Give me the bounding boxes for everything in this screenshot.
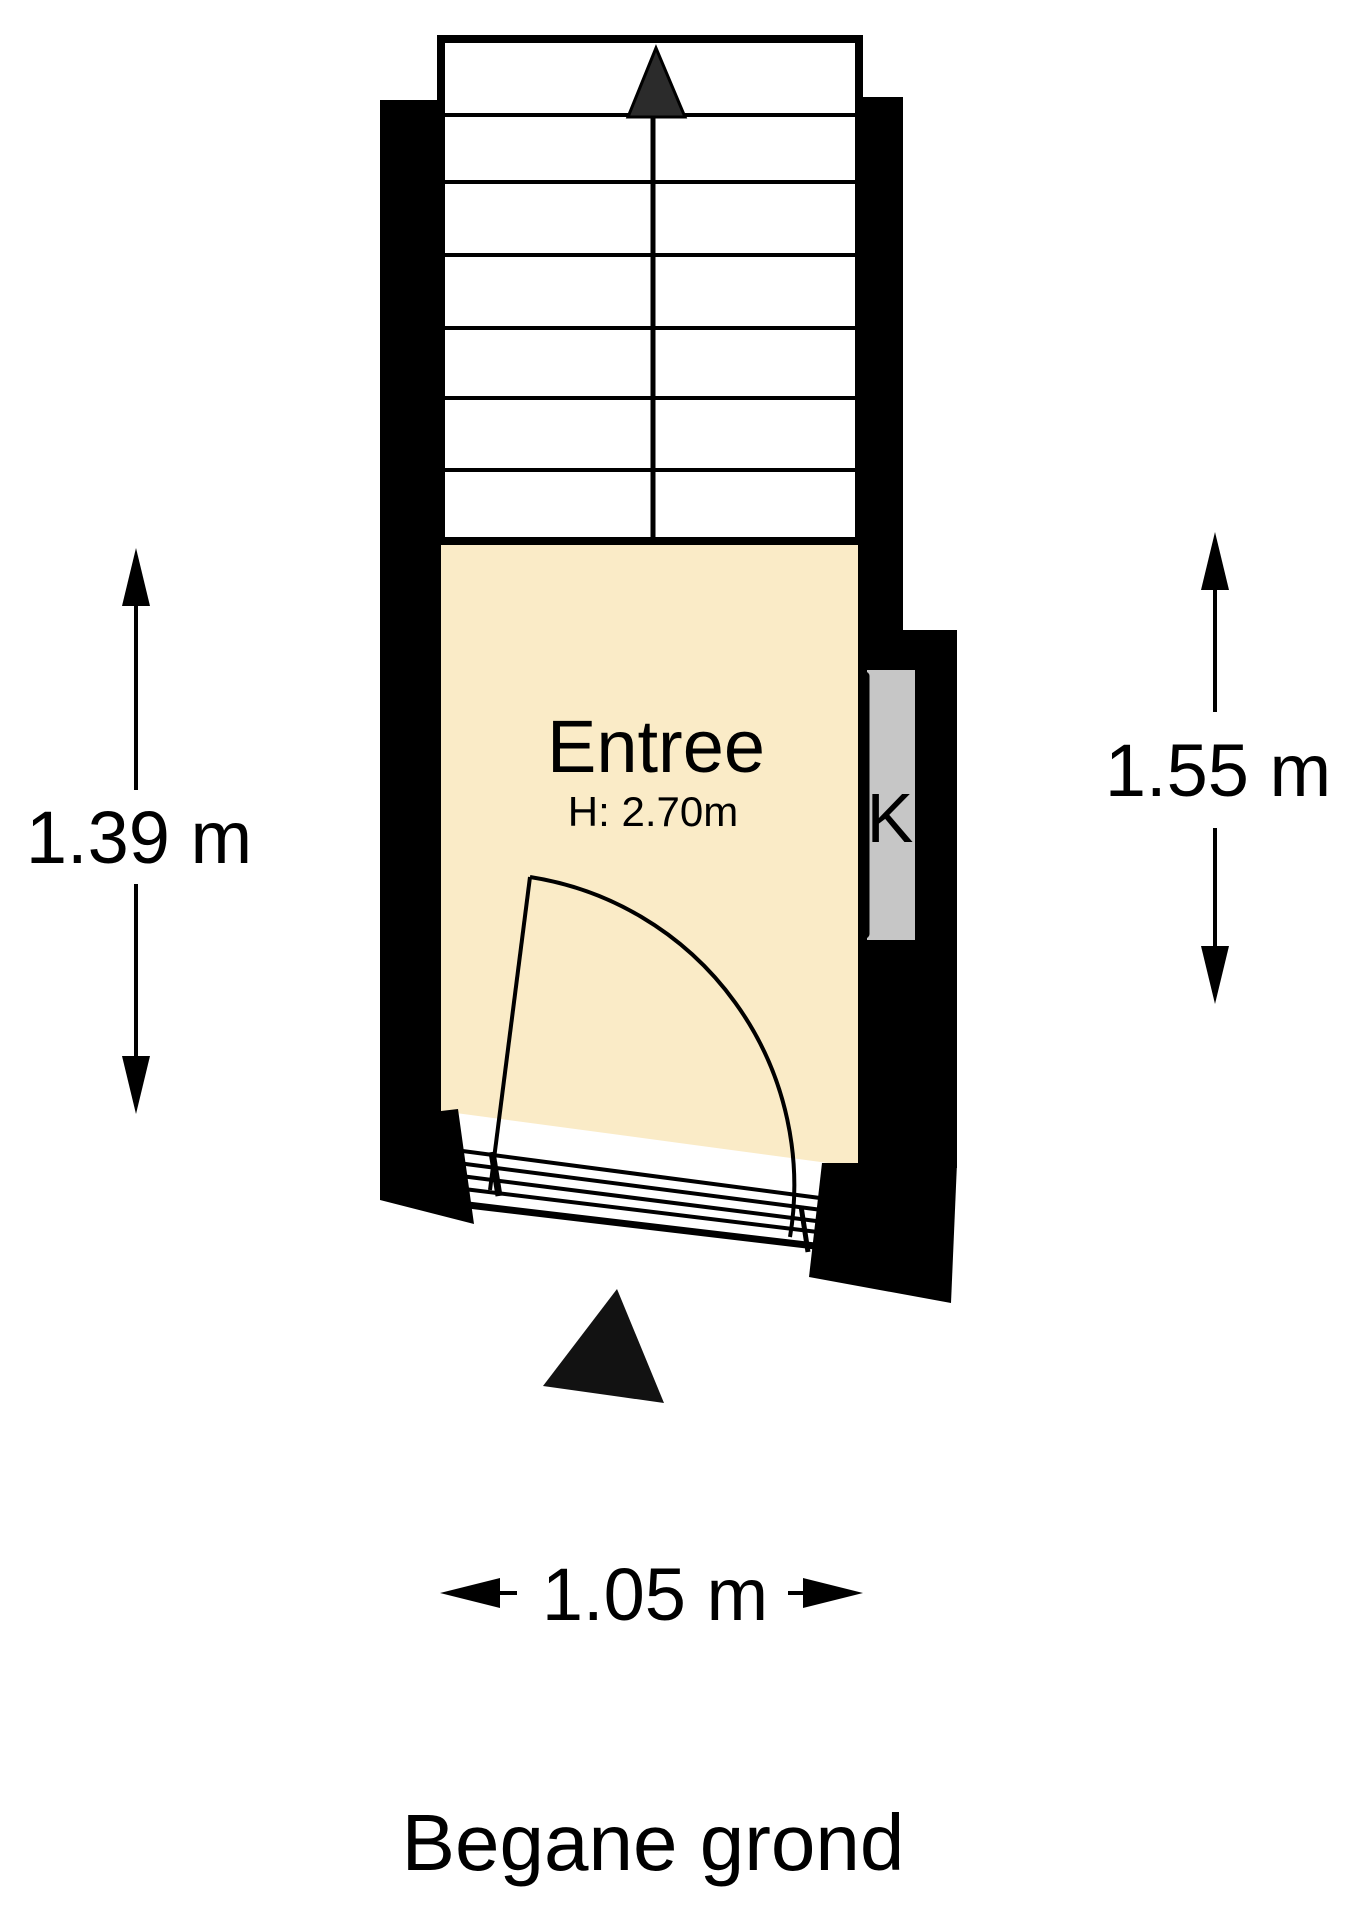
dimension-bottom-label: 1.05 m [542,1553,768,1636]
meter-cupboard: K [865,670,915,940]
wall-right-lower [809,1163,957,1303]
dimension-right-label: 1.55 m [1105,729,1331,812]
room-height-label: H: 2.70m [568,788,738,835]
dimension-arrowhead-down [1201,946,1229,1004]
entrance-triangle-icon [543,1289,664,1403]
step-line [461,1176,824,1222]
dimension-bottom: 1.05 m [440,1553,863,1636]
entrance-steps [455,1150,832,1252]
staircase [441,39,859,541]
dimension-arrowhead-right [803,1578,863,1608]
dimension-arrowhead-down [122,1056,150,1114]
dimension-left: 1.39 m [26,548,252,1114]
door-jamb-left [492,1152,499,1196]
floorplan-canvas: K Entree H: 2.70m 1.39 m [0,0,1358,1920]
dimension-arrowhead-up [1201,532,1229,590]
wall-right-upper [858,97,903,630]
dimension-right: 1.55 m [1105,532,1331,1004]
dimension-arrowhead-up [122,548,150,606]
floorplan-drawing: K Entree H: 2.70m 1.39 m [0,0,1358,1920]
dimension-arrowhead-left [440,1578,500,1608]
floor-title: Begane grond [402,1798,905,1887]
room-label: Entree [547,705,765,788]
step-line [458,1163,822,1210]
meter-cupboard-label: K [867,779,914,857]
dimension-left-label: 1.39 m [26,796,252,879]
step-line [455,1150,820,1198]
